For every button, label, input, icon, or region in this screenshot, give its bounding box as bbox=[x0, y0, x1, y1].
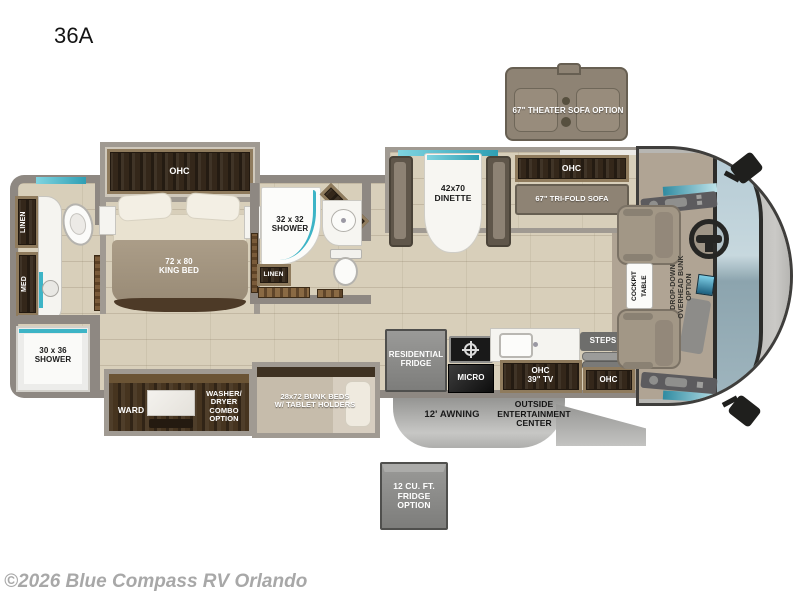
nightstand-left bbox=[99, 206, 116, 235]
ward-label: WARD bbox=[112, 406, 150, 416]
king-bed-label: 72 x 80 KING BED bbox=[112, 258, 246, 276]
dinette-table: 42x70 DINETTE bbox=[424, 153, 482, 253]
fridge-option-box: 12 CU. FT. FRIDGE OPTION bbox=[380, 462, 448, 530]
rear-shower-accent bbox=[19, 329, 87, 333]
theater-sofa-option: 67" THEATER SOFA OPTION bbox=[505, 67, 628, 141]
cupholder-icon bbox=[562, 97, 570, 105]
mid-linen-cabinet: LINEN bbox=[257, 264, 291, 286]
rear-shower: 30 x 36 SHOWER bbox=[16, 326, 90, 392]
faucet-icon bbox=[533, 342, 538, 347]
rear-linen-cabinet: LINEN bbox=[15, 196, 39, 248]
kitchen-counter bbox=[490, 328, 580, 362]
outside-entertainment-label: OUTSIDE ENTERTAINMENT CENTER bbox=[486, 400, 582, 429]
rear-shower-wall bbox=[90, 315, 100, 398]
rear-bath-wall-bottom bbox=[18, 315, 96, 324]
tri-fold-sofa: 67" TRI-FOLD SOFA bbox=[515, 184, 629, 215]
mid-linen-label: LINEN bbox=[260, 271, 287, 278]
dealer-watermark: ©2026 Blue Compass RV Orlando bbox=[4, 571, 307, 593]
ward-slide: WARD WASHER/ DRYER COMBO OPTION bbox=[104, 369, 254, 436]
mid-bath-wall-right bbox=[362, 183, 371, 241]
pillow-icon bbox=[185, 192, 241, 222]
bed-footboard bbox=[114, 298, 246, 312]
rear-bath-window bbox=[36, 177, 86, 184]
toilet-icon bbox=[330, 249, 362, 287]
rear-linen-label: LINEN bbox=[20, 201, 34, 243]
ward-counter bbox=[147, 390, 195, 416]
cupholder-icon bbox=[561, 117, 571, 127]
washer-dryer-label: WASHER/ DRYER COMBO OPTION bbox=[199, 390, 249, 424]
bunk-head-band bbox=[257, 367, 375, 377]
kitchen-ohc-tv: OHC 39" TV bbox=[500, 360, 582, 393]
dinette-table-accent bbox=[427, 155, 479, 160]
tri-fold-sofa-label: 67" TRI-FOLD SOFA bbox=[517, 195, 627, 203]
cooktop-icon bbox=[449, 336, 493, 363]
sink-icon bbox=[42, 280, 59, 297]
sink-icon bbox=[499, 333, 533, 358]
microwave-label: MICRO bbox=[449, 374, 493, 383]
sofa-ohc-label: OHC bbox=[518, 164, 625, 174]
dinette-bench-left bbox=[389, 156, 413, 247]
sink-icon bbox=[331, 209, 356, 232]
floorplan-image: 36A 67" THEATER SOFA OPTION 12' AWNING O… bbox=[0, 0, 800, 600]
kitchen-ohc-right: OHC bbox=[583, 367, 635, 393]
king-bed: 72 x 80 KING BED bbox=[110, 192, 250, 314]
residential-fridge: RESIDENTIAL FRIDGE bbox=[385, 329, 447, 392]
bunk-beds-label: 28x72 BUNK BEDS W/ TABLET HOLDERS bbox=[259, 393, 371, 410]
fridge-option-top-edge bbox=[382, 464, 446, 472]
overhead-bunk-option-label: DROP-DOWN OVERHEAD BUNK OPTION bbox=[670, 255, 693, 318]
hall-shelf bbox=[317, 289, 343, 298]
bunk-slide: 28x72 BUNK BEDS W/ TABLET HOLDERS bbox=[252, 362, 380, 438]
theater-sofa-headrest bbox=[557, 63, 581, 75]
floorplan-model-label: 36A bbox=[54, 24, 93, 49]
ward-drawer bbox=[149, 419, 193, 428]
kitchen-ohc-tv-label: OHC 39" TV bbox=[503, 367, 578, 385]
overhead-bunk-option-label-wrap: DROP-DOWN OVERHEAD BUNK OPTION bbox=[645, 235, 719, 339]
residential-fridge-label: RESIDENTIAL FRIDGE bbox=[387, 351, 445, 369]
theater-sofa-label: 67" THEATER SOFA OPTION bbox=[509, 107, 627, 116]
ward-top-band bbox=[109, 374, 249, 383]
rear-med-label: MED bbox=[21, 263, 34, 305]
kitchen-ohc-right-label: OHC bbox=[586, 376, 631, 385]
microwave: MICRO bbox=[448, 364, 494, 393]
bedroom-ohc: OHC bbox=[107, 149, 253, 194]
mid-shower-label: 32 x 32 SHOWER bbox=[262, 216, 318, 234]
bedroom-ohc-label: OHC bbox=[110, 166, 249, 176]
bed-blanket: 72 x 80 KING BED bbox=[112, 240, 248, 302]
pillow-icon bbox=[117, 192, 173, 222]
windshield bbox=[713, 149, 763, 403]
sofa-ohc: OHC bbox=[515, 155, 629, 182]
dinette-bench-right bbox=[486, 156, 511, 247]
dinette-label: 42x70 DINETTE bbox=[425, 184, 481, 203]
fridge-option-label: 12 CU. FT. FRIDGE OPTION bbox=[384, 482, 444, 511]
linen-shelf bbox=[258, 287, 310, 298]
rear-shower-label: 30 x 36 SHOWER bbox=[20, 347, 86, 365]
rear-med-cabinet: MED bbox=[16, 252, 39, 316]
